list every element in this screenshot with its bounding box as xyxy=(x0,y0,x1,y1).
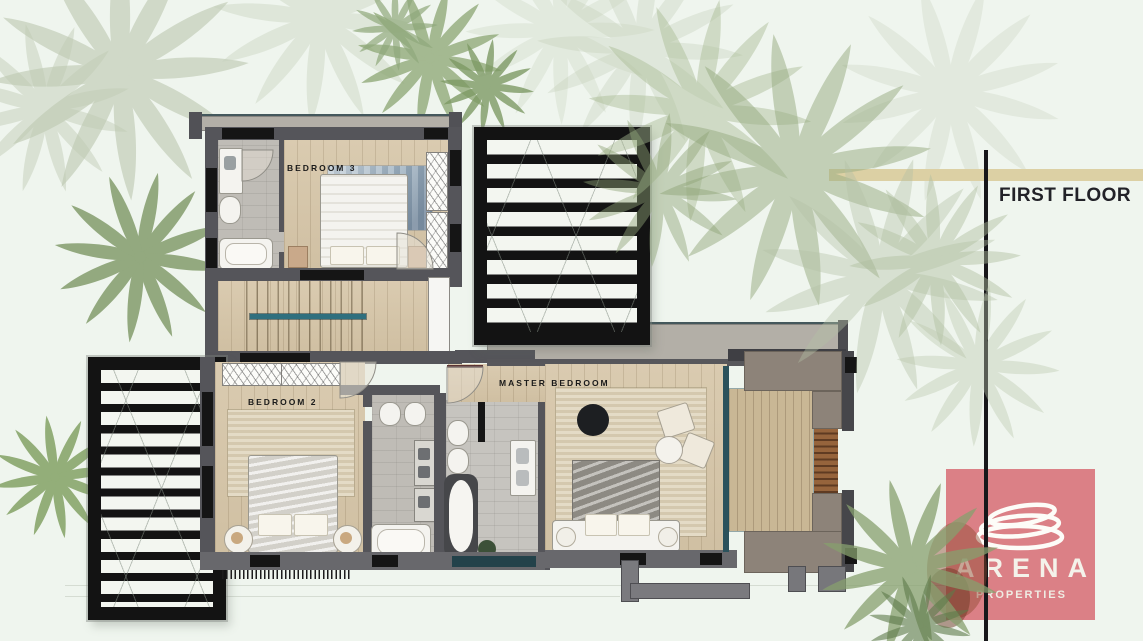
bedroom2-wardrobe xyxy=(222,363,282,386)
bathtub-inner xyxy=(225,243,267,265)
column-stub xyxy=(818,566,846,592)
arena-properties-logo: ARENA PROPERTIES xyxy=(946,469,1095,620)
parapet-wall xyxy=(630,583,750,599)
sink-basin xyxy=(516,470,529,486)
freestanding-bathtub xyxy=(449,480,473,552)
sink-basin xyxy=(224,156,236,170)
bathroom3-vanity xyxy=(219,148,243,194)
window-segment xyxy=(206,238,217,270)
window-glazing xyxy=(452,556,536,567)
door-leaf xyxy=(447,365,483,368)
window-segment xyxy=(450,150,461,186)
floor-title: FIRST FLOOR xyxy=(999,185,1131,207)
lamp xyxy=(340,532,352,544)
pillow xyxy=(330,246,364,265)
wall-segment xyxy=(279,140,284,232)
balcony-deck xyxy=(729,389,813,531)
sink-basin xyxy=(418,466,430,478)
nightstand xyxy=(408,246,428,268)
balcony-wall xyxy=(812,493,842,533)
window-segment xyxy=(202,466,213,518)
window-segment xyxy=(372,555,398,567)
master-bedroom-label: MASTER BEDROOM xyxy=(499,378,610,388)
window-segment xyxy=(222,128,274,139)
ceiling-fan-icon xyxy=(577,404,609,436)
nightstand xyxy=(288,246,308,268)
wall-segment xyxy=(478,400,485,442)
window-segment xyxy=(250,555,280,567)
bedroom2-wardrobe xyxy=(281,363,341,386)
floor-plan-page: BEDROOM 3 BEDROOM 2 xyxy=(0,0,1143,641)
window-segment xyxy=(424,128,448,139)
window-segment xyxy=(845,548,857,564)
window-segment xyxy=(845,357,857,373)
bedroom3-wardrobe xyxy=(426,152,448,211)
pillow xyxy=(585,514,617,536)
bedroom2-bed xyxy=(248,455,338,553)
lamp xyxy=(231,532,243,544)
sink-basin xyxy=(516,448,529,464)
shaft xyxy=(428,277,450,355)
toilet xyxy=(447,420,469,446)
balcony-wall xyxy=(812,391,842,429)
bolster-cushion xyxy=(658,527,678,547)
sink xyxy=(379,402,401,426)
bedroom3-label: BEDROOM 3 xyxy=(287,163,356,173)
window-segment xyxy=(700,553,722,565)
vertical-rule xyxy=(984,150,988,641)
master-bed xyxy=(572,460,660,522)
sink-basin xyxy=(418,448,430,460)
bolster-cushion xyxy=(556,527,576,547)
wall-segment xyxy=(189,112,202,139)
pillow xyxy=(258,514,292,536)
wall-segment xyxy=(363,393,372,407)
pillow xyxy=(618,514,650,536)
window-segment xyxy=(206,168,217,212)
logo-brand-text: ARENA xyxy=(946,553,1095,584)
wall-segment xyxy=(340,385,440,395)
column-stub xyxy=(788,566,806,592)
vanity-cabinet xyxy=(414,440,436,486)
wall-segment xyxy=(200,357,215,570)
pergola-top xyxy=(474,127,650,345)
toilet xyxy=(447,448,469,474)
louver-detail xyxy=(222,570,352,579)
bedroom3-wardrobe xyxy=(426,212,448,271)
window-segment xyxy=(202,392,213,446)
stair-handrail xyxy=(250,314,366,319)
sink xyxy=(404,402,426,426)
balcony-louver xyxy=(814,429,838,493)
window-segment xyxy=(450,224,461,252)
sink-basin xyxy=(418,496,430,508)
toilet xyxy=(219,196,241,224)
pillow xyxy=(294,514,328,536)
window-segment xyxy=(300,270,364,280)
balcony-wall xyxy=(744,351,842,391)
bedroom2-label: BEDROOM 2 xyxy=(248,397,317,407)
logo-tagline-text: PROPERTIES xyxy=(946,589,1095,601)
pillow xyxy=(366,246,400,265)
window-segment xyxy=(240,353,310,362)
